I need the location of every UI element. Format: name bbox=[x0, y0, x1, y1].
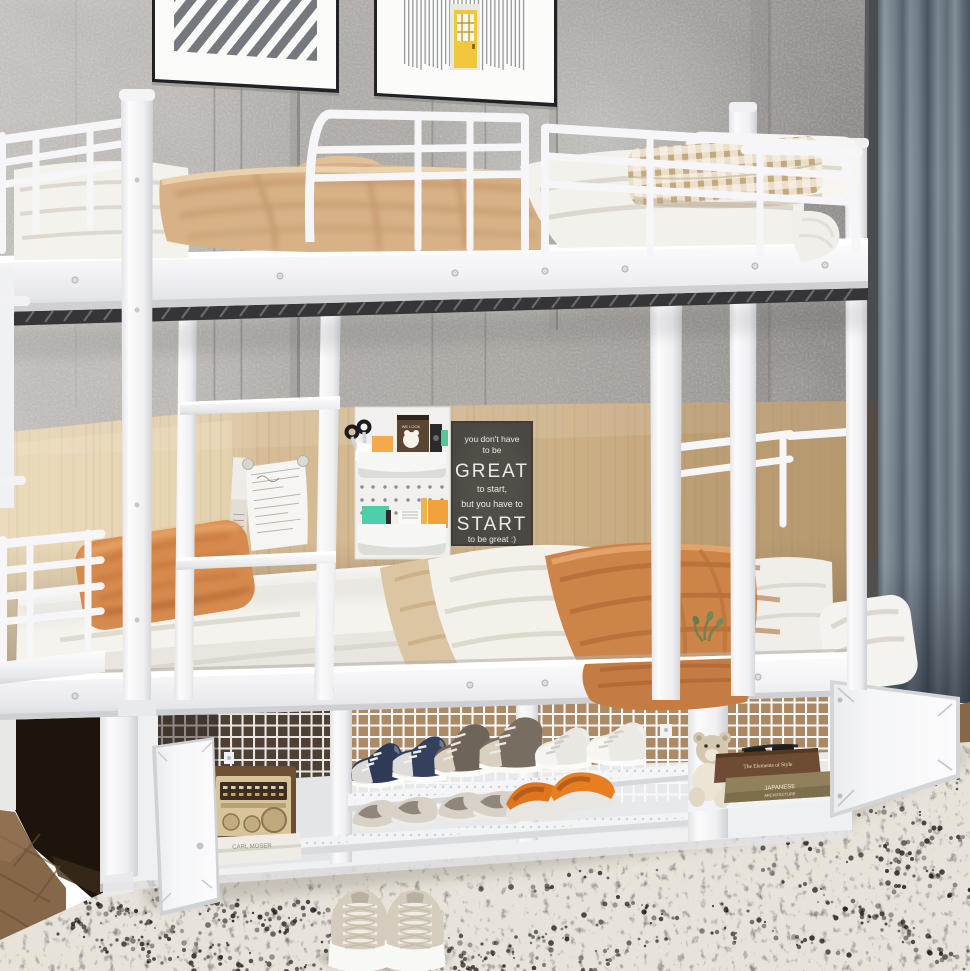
svg-text:to be: to be bbox=[483, 445, 502, 455]
svg-text:WE LOOK: WE LOOK bbox=[402, 424, 421, 429]
svg-text:START: START bbox=[457, 514, 528, 535]
svg-text:but you have to: but you have to bbox=[461, 499, 523, 509]
svg-text:you don't have: you don't have bbox=[464, 434, 519, 444]
svg-text:to be great :): to be great :) bbox=[468, 534, 516, 544]
svg-text:GREAT: GREAT bbox=[455, 461, 529, 482]
svg-text:to start,: to start, bbox=[477, 484, 507, 494]
